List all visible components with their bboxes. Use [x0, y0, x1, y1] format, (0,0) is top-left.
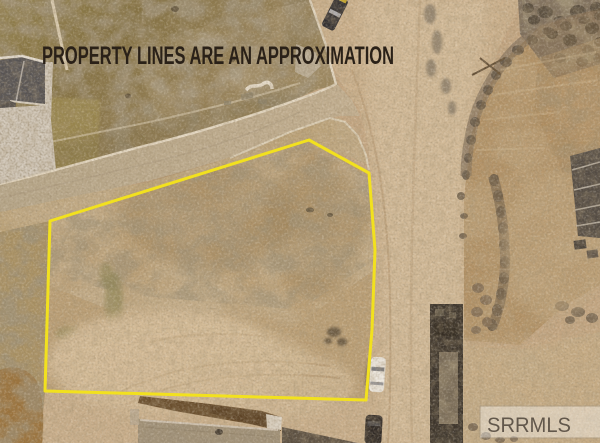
svg-text:PROPERTY LINES ARE AN APPROXIM: PROPERTY LINES ARE AN APPROXIMATION [42, 42, 394, 70]
svg-text:SRRMLS: SRRMLS [487, 414, 571, 437]
